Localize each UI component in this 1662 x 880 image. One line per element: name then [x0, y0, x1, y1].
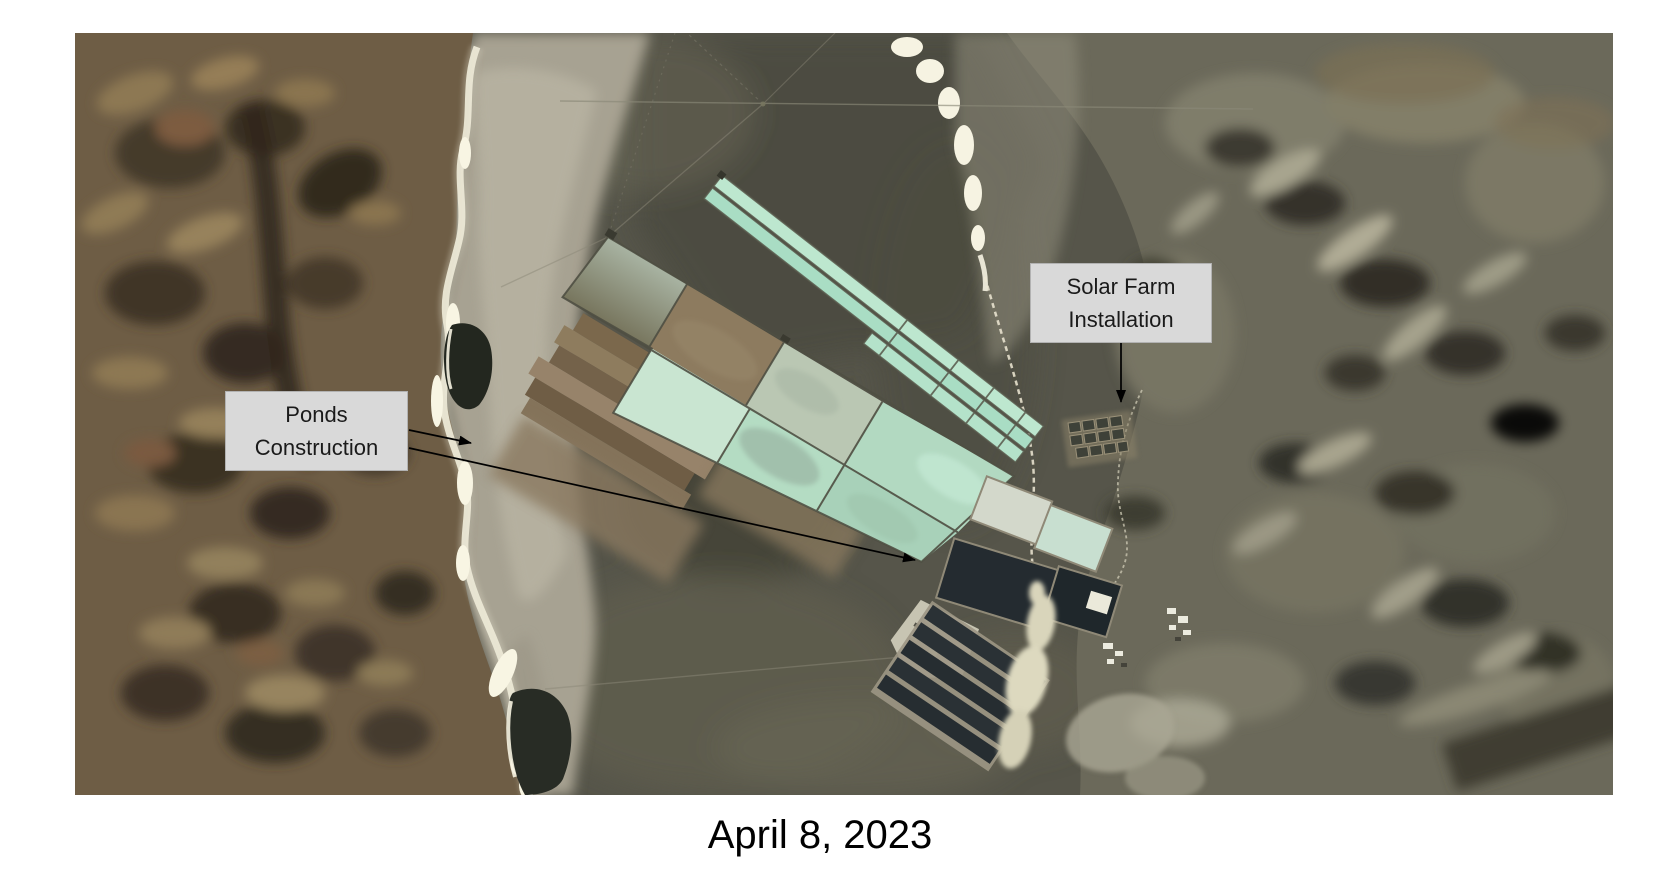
solar-label-line1: Solar Farm — [1067, 270, 1176, 303]
ponds-label-line1: Ponds — [285, 398, 347, 431]
annotated-satellite-figure: Ponds Construction Solar Farm Installati… — [0, 0, 1662, 880]
solar-label-line2: Installation — [1068, 303, 1173, 336]
ponds-label-line2: Construction — [255, 431, 379, 464]
solar-farm-label: Solar Farm Installation — [1030, 263, 1212, 343]
solar-farm — [1062, 410, 1138, 467]
date-caption: April 8, 2023 — [51, 812, 1589, 858]
ponds-construction-label: Ponds Construction — [225, 391, 408, 471]
